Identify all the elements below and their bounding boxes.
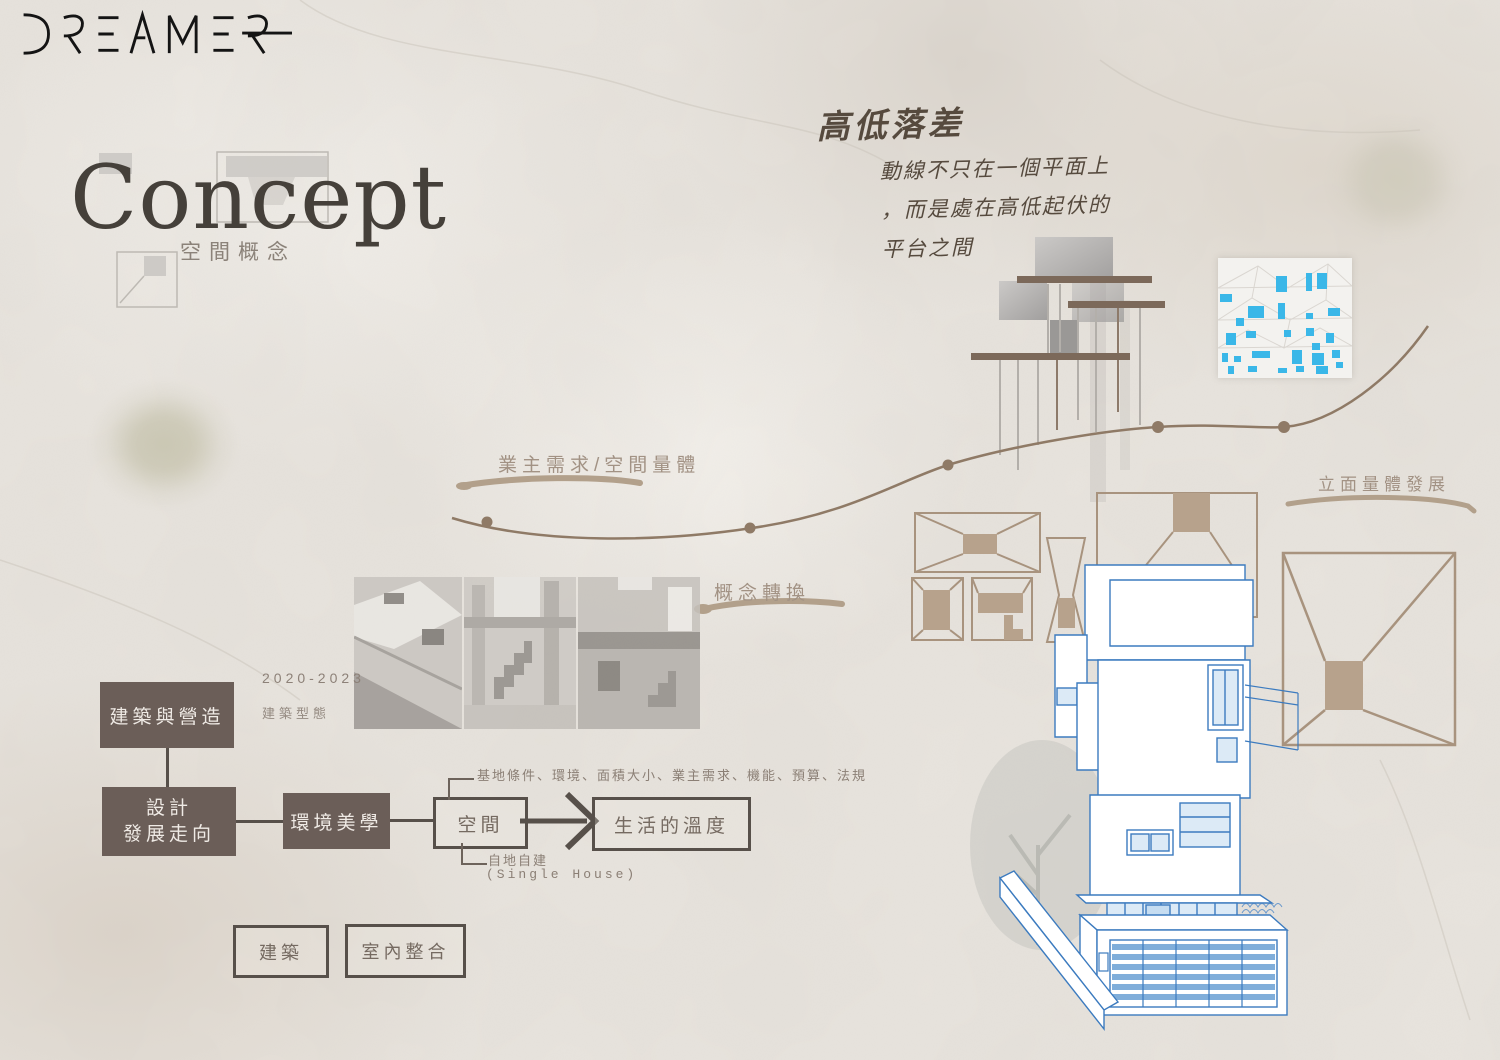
connector (166, 748, 169, 788)
logo-letter-r (64, 16, 83, 53)
page-subtitle: 空間概念 (180, 236, 296, 266)
facade-window (1248, 366, 1257, 372)
bracket-selfbuild (461, 843, 487, 865)
facade-window (1292, 350, 1302, 364)
facade-window (1336, 362, 1343, 368)
facade-window (1317, 273, 1327, 289)
facade-window (1296, 366, 1304, 372)
facade-window-study (1218, 258, 1352, 378)
logo-letter-e2 (213, 18, 233, 51)
facade-window (1306, 328, 1314, 336)
facade-window (1316, 366, 1328, 374)
facade-window (1236, 318, 1244, 326)
construction-photo-2 (464, 577, 576, 729)
facade-window (1306, 313, 1313, 319)
flow-box-space: 空間 (433, 797, 528, 849)
facade-window (1246, 331, 1256, 338)
conditions-note: 基地條件、環境、面積大小、業主需求、機能、預算、法規 (477, 765, 1117, 784)
facade-window (1312, 353, 1324, 365)
facade-window (1276, 276, 1287, 292)
dreamer-logo (14, 10, 292, 58)
concept-poster: { "poster": { "brand_logo": "DREAMER", "… (0, 0, 1500, 1060)
connector (390, 819, 434, 822)
flow-box-interior-integration: 室內整合 (345, 924, 466, 978)
facade-window (1328, 308, 1340, 316)
timeline-caption: 建築型態 (262, 703, 330, 722)
note-line: 動線不只在一個平面上 (879, 149, 1148, 186)
handwritten-note: 高低落差 動線不只在一個平面上 ，而是處在高低起伏的 平台之間 (816, 92, 1150, 266)
flow-box-design-direction: 設計 發展走向 (102, 787, 236, 856)
facade-window (1278, 368, 1287, 373)
flow-box-living-warmth: 生活的溫度 (592, 797, 751, 851)
facade-window (1234, 356, 1241, 362)
flow-box-construction: 建築與營造 (100, 682, 234, 748)
logo-letter-m (169, 16, 196, 53)
selfbuild-note-en: (Single House) (486, 867, 637, 882)
flow-box-design-line2: 發展走向 (123, 822, 215, 848)
flow-box-design-line1: 設計 (123, 796, 215, 822)
label-facade-development: 立面量體發展 (1318, 470, 1450, 495)
facade-window (1326, 333, 1334, 343)
flow-box-aesthetics: 環境美學 (283, 793, 390, 849)
label-concept-transform: 概念轉換 (714, 578, 810, 605)
facade-window (1312, 343, 1320, 350)
facade-window (1226, 333, 1236, 345)
note-line: ，而是處在高低起伏的 (880, 188, 1149, 225)
facade-window (1222, 353, 1228, 362)
tree-plan-left (88, 378, 240, 510)
facade-window (1332, 350, 1340, 358)
facade-window (1228, 366, 1234, 374)
tree-plan-right (1322, 112, 1470, 248)
facade-window (1252, 351, 1270, 358)
facade-window (1248, 306, 1264, 318)
bracket-conditions (448, 778, 474, 800)
timeline-years: 2020-2023 (262, 670, 365, 686)
facade-window (1284, 330, 1291, 337)
facade-window (1306, 273, 1312, 291)
logo-letter-d (24, 15, 49, 53)
construction-photo-3 (578, 577, 700, 729)
note-heading: 高低落差 (816, 92, 1147, 149)
logo-letter-a (131, 15, 154, 53)
connector (236, 820, 284, 823)
flow-box-architecture: 建築 (233, 925, 329, 978)
facade-window (1278, 303, 1285, 319)
logo-letter-r2 (242, 16, 292, 53)
construction-photo-1 (354, 577, 462, 729)
logo-letter-e (98, 18, 118, 51)
facade-window (1220, 294, 1232, 302)
label-owner-needs: 業主需求/空間量體 (498, 450, 700, 477)
